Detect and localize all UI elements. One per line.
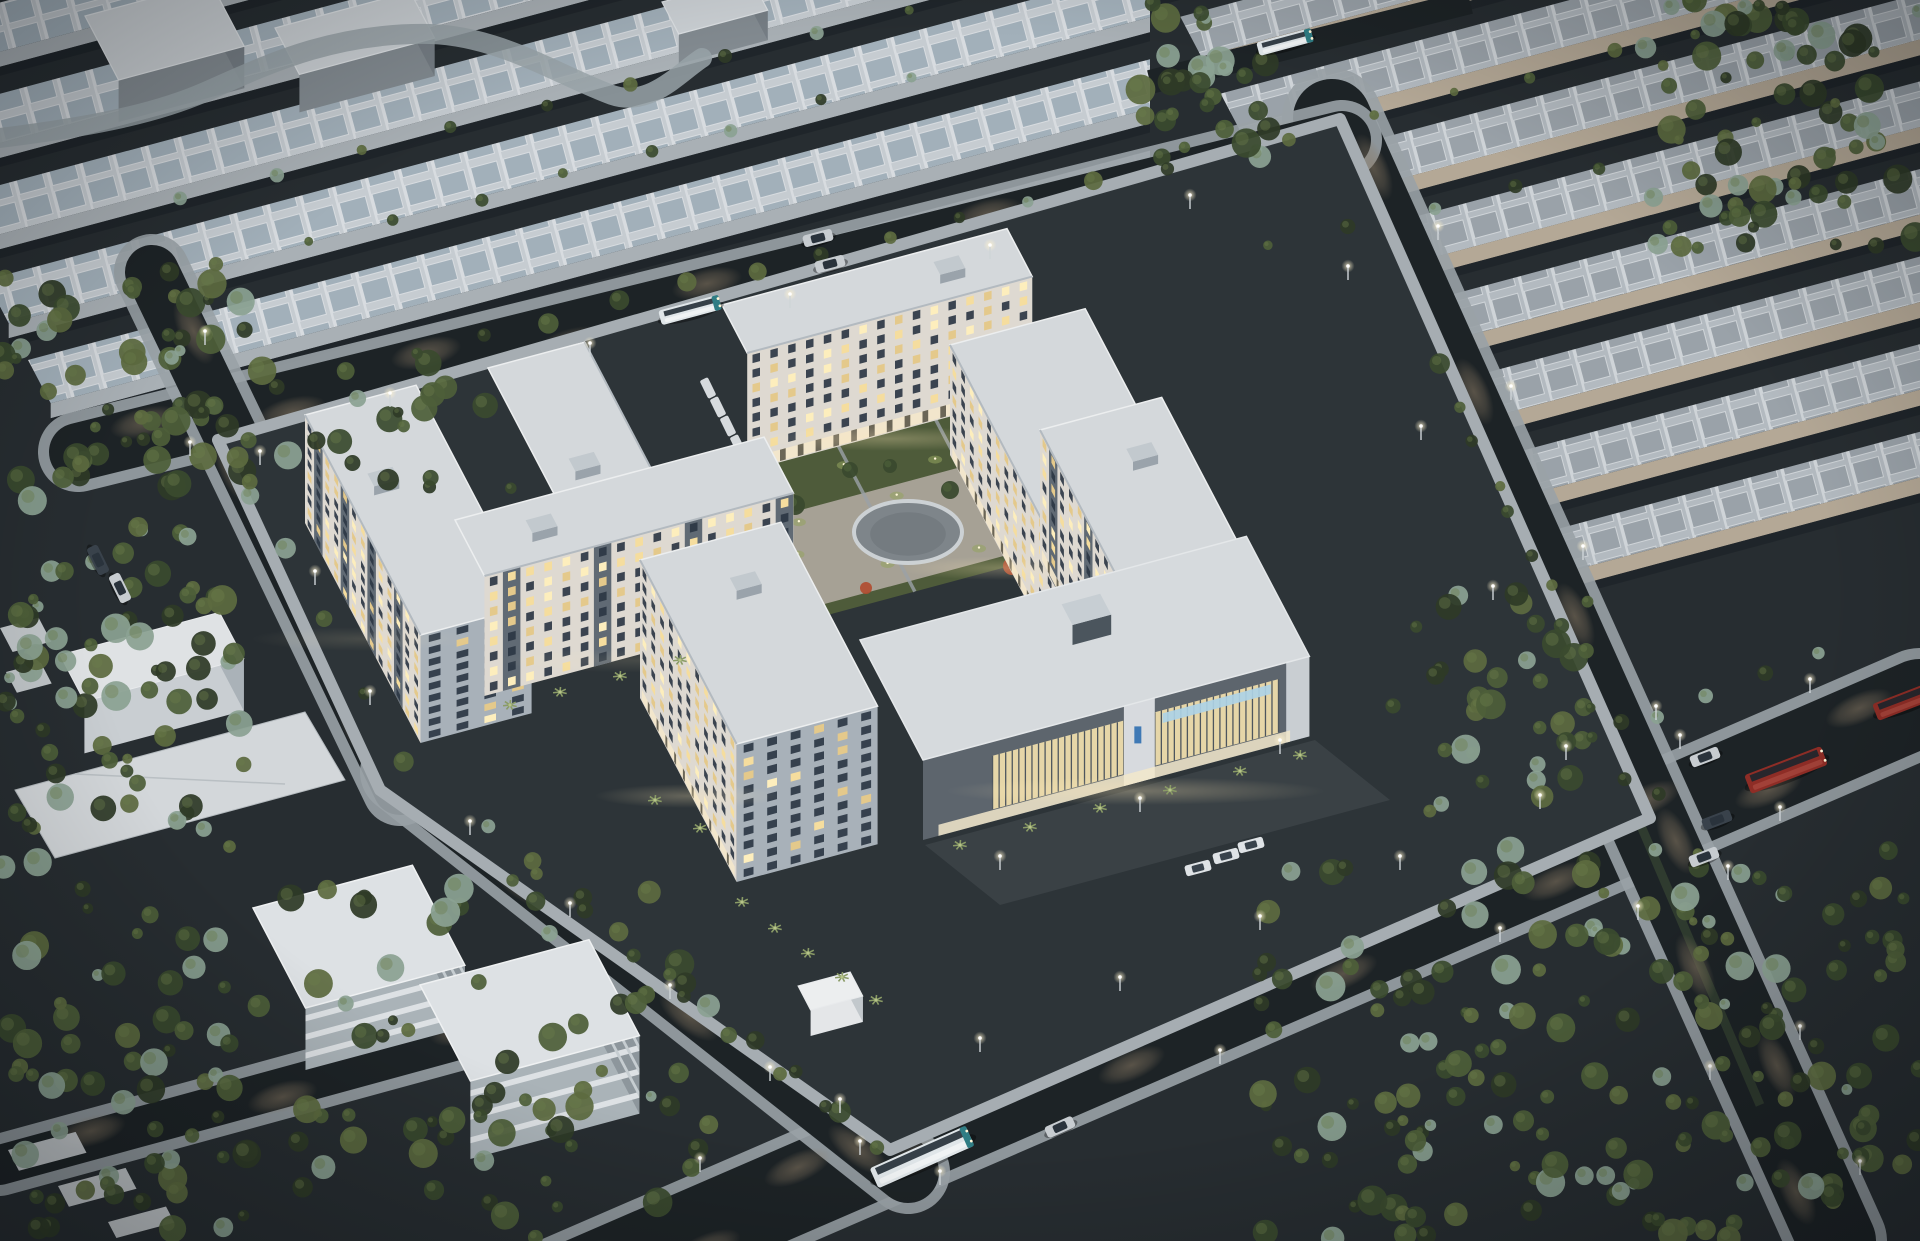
- aerial-render: [0, 0, 1920, 1241]
- dusk-vignette: [0, 0, 1920, 1241]
- atmosphere: [0, 0, 1920, 1241]
- dusk-compound-rendering: [0, 0, 1920, 1241]
